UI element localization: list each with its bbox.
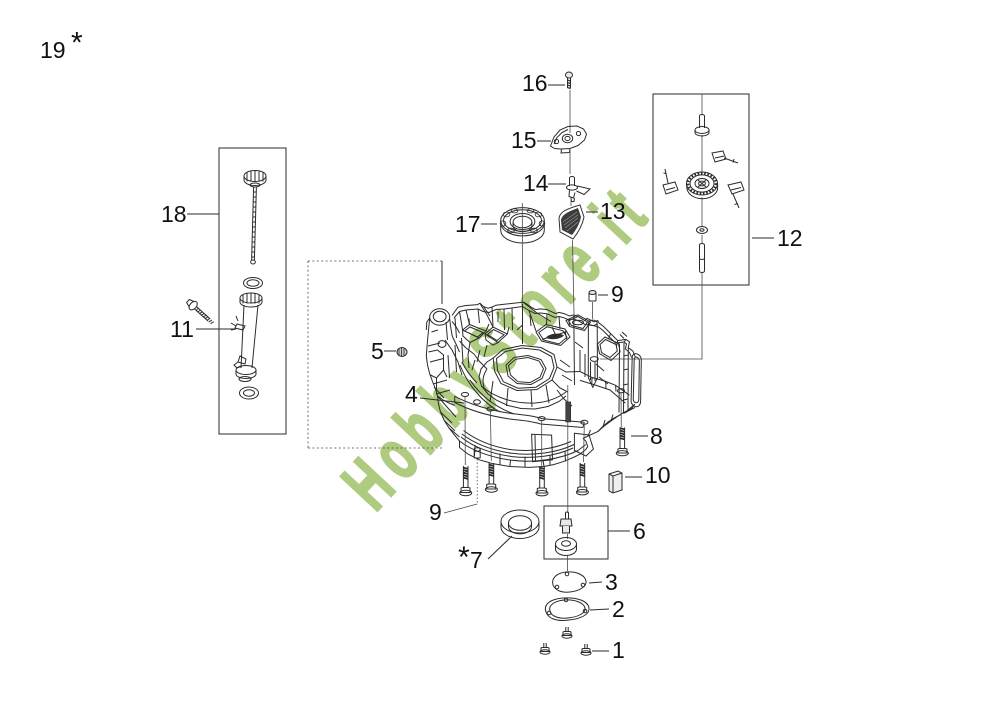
svg-text:13: 13	[600, 198, 626, 224]
svg-text:*: *	[71, 27, 83, 60]
svg-text:15: 15	[511, 127, 537, 153]
svg-text:17: 17	[455, 211, 481, 237]
svg-text:*: *	[458, 541, 470, 574]
svg-text:12: 12	[777, 225, 803, 251]
svg-text:18: 18	[161, 201, 187, 227]
svg-text:6: 6	[633, 518, 646, 544]
svg-text:4: 4	[405, 381, 418, 407]
svg-text:2: 2	[612, 596, 625, 622]
svg-text:14: 14	[523, 170, 549, 196]
svg-text:16: 16	[522, 70, 548, 96]
svg-text:10: 10	[645, 462, 671, 488]
svg-text:9: 9	[429, 499, 442, 525]
svg-text:3: 3	[605, 569, 618, 595]
svg-text:11: 11	[170, 316, 194, 342]
svg-text:8: 8	[650, 423, 663, 449]
svg-text:5: 5	[371, 338, 384, 364]
svg-text:1: 1	[612, 637, 625, 663]
svg-text:9: 9	[611, 281, 624, 307]
svg-text:19: 19	[40, 37, 66, 63]
svg-text:7: 7	[470, 547, 483, 573]
